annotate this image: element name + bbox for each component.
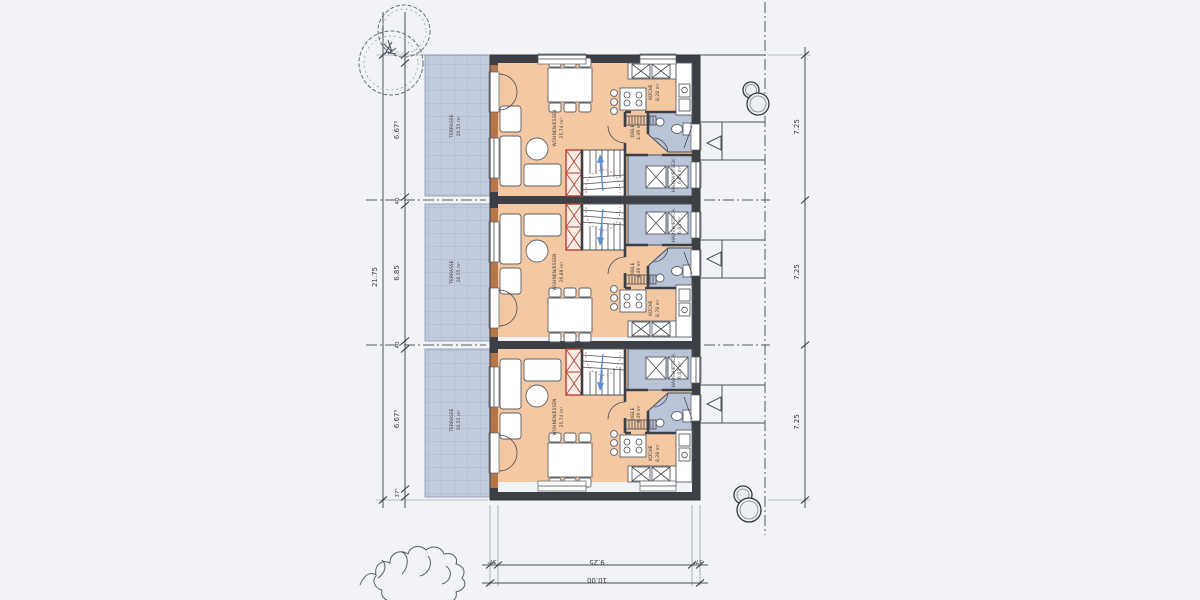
dim-right-seg-2: 7.25 (793, 264, 801, 280)
dim-left-seg-2: 40 (395, 197, 401, 204)
label-wohnen-mid-area: 26,89 m² (559, 262, 564, 283)
dim-right-seg-3: 7.25 (793, 414, 801, 430)
label-wohnen-mid: WOHNEN/ESSEN (552, 253, 557, 290)
east-wall (692, 55, 700, 500)
label-kueche-top: KÜCHE (648, 84, 653, 100)
party-wall-1 (490, 196, 700, 204)
label-hausw-mid: HAUSWIRTSCH. (671, 208, 676, 243)
unit-top-plan (489, 58, 701, 196)
label-diele-bot: DIELE (630, 407, 635, 420)
dim-left-seg-4: 40 (395, 341, 401, 348)
label-wohnen-bot-area: 25,74 m² (559, 407, 564, 428)
label-kueche-mid: KÜCHE (648, 300, 653, 316)
label-terrasse-top: TERRASSE (449, 114, 454, 138)
dim-left-total: 21.75 (371, 267, 379, 287)
dim-left-seg-3: 6.85 (393, 265, 401, 281)
label-wohnen-top-area: 25,74 m² (559, 118, 564, 139)
dim-bottom-wall-right: 37⁵ (693, 558, 702, 565)
label-diele-top-area: 4,49 m² (636, 122, 641, 140)
label-diele-top: DIELE (630, 124, 635, 137)
label-terrasse-bot-area: 20,55 m² (456, 410, 461, 431)
label-kueche-bot-area: 8,28 m² (655, 444, 660, 462)
label-kueche-top-area: 8,28 m² (655, 83, 660, 101)
unit-bottom-plan (489, 349, 701, 487)
dim-left-seg-5: 6.67⁵ (393, 410, 401, 429)
label-hausw-bot-area: 6,03 m² (677, 361, 682, 379)
label-terrasse-mid-area: 20,55 m² (456, 262, 461, 283)
south-wall (490, 492, 700, 500)
floor-plan-canvas: TERRASSE 20,55 m² WOHNEN/ESSEN 25,74 m² … (0, 0, 1200, 600)
label-diele-bot-area: 4,49 m² (636, 405, 641, 423)
label-wohnen-top: WOHNEN/ESSEN (552, 109, 557, 146)
dim-bottom-total: 10.00 (587, 576, 607, 584)
label-hausw-bot: HAUSWIRTSCH. (671, 353, 676, 388)
label-wohnen-bot: WOHNEN/ESSEN (552, 398, 557, 435)
label-hausw-mid-area: 6,04 m² (677, 216, 682, 234)
dim-left-seg-6: 37⁵ (394, 488, 401, 497)
label-diele-mid: DIELE (630, 262, 635, 275)
unit-middle-plan (489, 204, 701, 342)
label-hausw-top-area: 6,03 m² (677, 166, 682, 184)
party-wall-2 (490, 341, 700, 349)
label-kueche-mid-area: 8,78 m² (655, 299, 660, 317)
dim-right-seg-1: 7.25 (793, 119, 801, 135)
label-terrasse-mid: TERRASSE (449, 260, 454, 284)
dim-bottom-width: 9.25 (589, 558, 605, 566)
label-terrasse-bot: TERRASSE (449, 408, 454, 432)
label-hausw-top: HAUSWIRTSCH. (671, 158, 676, 193)
label-terrasse-top-area: 20,55 m² (456, 116, 461, 137)
dim-bottom-wall-left: 37⁵ (487, 558, 496, 565)
dim-left-seg-1: 6.67⁵ (393, 121, 401, 140)
label-diele-mid-area: 4,49 m² (636, 260, 641, 278)
label-kueche-bot: KÜCHE (648, 445, 653, 461)
